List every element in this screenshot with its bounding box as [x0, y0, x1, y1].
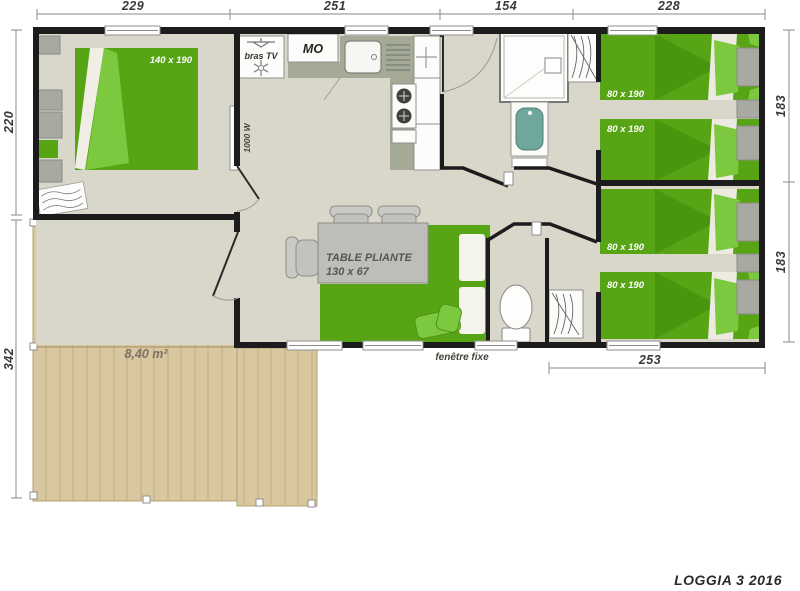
- fridge: [414, 78, 440, 124]
- microwave-label: MO: [303, 42, 323, 56]
- dim-label: 154: [495, 0, 517, 13]
- fixed-window-label: fenêtre fixe: [435, 352, 489, 363]
- door-jamb: [504, 172, 513, 185]
- dimension-top: 229 251 154 228: [37, 0, 765, 20]
- dim-label: 253: [638, 353, 661, 367]
- pillow: [714, 40, 740, 96]
- dresser: [36, 160, 62, 182]
- fan-hub: [259, 66, 264, 71]
- tv-bracket-label: bras TV: [244, 51, 278, 61]
- dimension-left-top: 220: [2, 30, 22, 215]
- wc: [500, 285, 532, 342]
- pillow: [714, 278, 740, 335]
- terrace-deck-extension: [237, 348, 317, 506]
- toilet-tank: [502, 328, 530, 342]
- bed-size-label: 80 x 190: [607, 280, 645, 291]
- wardrobe-bottom: [549, 290, 583, 338]
- dim-label: 183: [774, 95, 788, 117]
- dim-label: 220: [2, 111, 16, 134]
- dimension-left-bottom: 342: [2, 220, 22, 498]
- dimension-bottom: 253: [549, 353, 765, 374]
- wardrobe-top: [568, 32, 598, 82]
- bed-size-label: 80 x 190: [607, 89, 645, 100]
- floor-plan-svg: TERRASSE 8,40 m² 140 x 190: [0, 0, 800, 591]
- bed-size-label: 80 x 190: [607, 124, 645, 135]
- terrace-area-label: 8,40 m²: [124, 347, 168, 361]
- toilet-bowl: [500, 285, 532, 329]
- dim-label: 183: [774, 251, 788, 273]
- plan-title: LOGGIA 3 2016: [674, 572, 782, 588]
- floor-plan: TERRASSE 8,40 m² 140 x 190: [0, 0, 800, 591]
- table-size-label: 130 x 67: [326, 266, 370, 278]
- bench: [36, 140, 58, 158]
- bedroom-cabinet: [36, 36, 60, 54]
- dim-label: 229: [121, 0, 144, 13]
- pillow: [714, 124, 740, 178]
- heater-label: 1000 W: [242, 122, 252, 152]
- drawer: [392, 130, 416, 143]
- bed-size-label: 80 x 190: [607, 242, 645, 253]
- nightstand: [36, 90, 62, 110]
- table-label: TABLE PLIANTE: [326, 252, 413, 264]
- dresser: [36, 112, 62, 138]
- double-bed-size-label: 140 x 190: [150, 55, 193, 66]
- door-jamb: [532, 222, 541, 235]
- pillow: [714, 194, 740, 251]
- armchair-seat: [296, 240, 319, 276]
- sofa-cushion: [459, 287, 485, 334]
- cabinet: [414, 124, 440, 170]
- dimension-right: 183 183: [774, 30, 795, 342]
- tap: [528, 111, 532, 115]
- shower-tray: [545, 58, 561, 73]
- shelf: [512, 158, 547, 167]
- dim-label: 251: [323, 0, 346, 13]
- sofa-cushion: [459, 234, 485, 281]
- counter: [288, 62, 340, 78]
- dim-label: 342: [2, 348, 16, 370]
- dim-label: 228: [657, 0, 680, 13]
- sink-bowl: [345, 41, 381, 73]
